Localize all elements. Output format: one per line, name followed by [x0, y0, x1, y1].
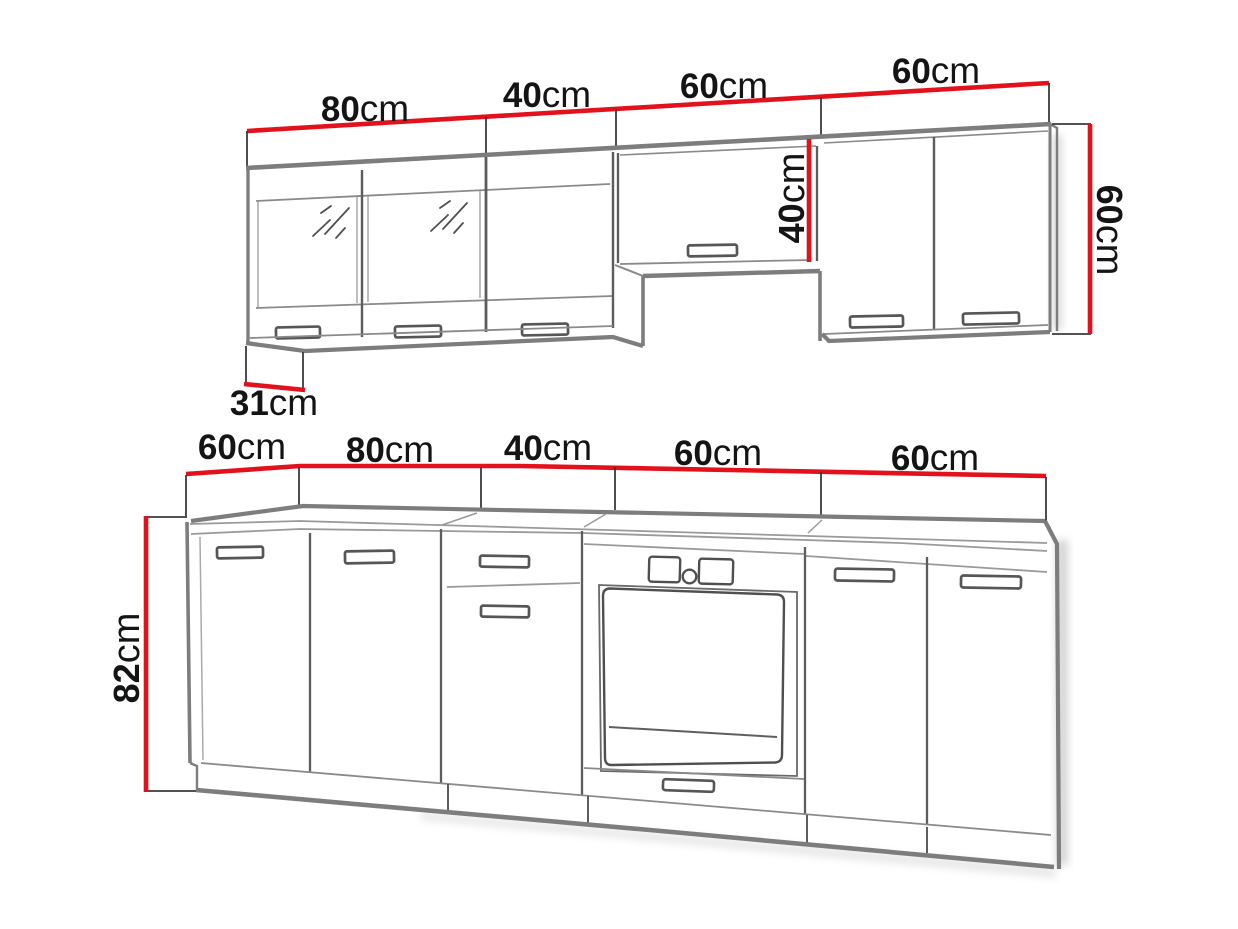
svg-text:31cm: 31cm — [230, 382, 318, 423]
svg-text:40cm: 40cm — [503, 74, 591, 115]
svg-text:60cm: 60cm — [198, 426, 286, 467]
svg-text:80cm: 80cm — [321, 88, 409, 129]
svg-text:60cm: 60cm — [674, 432, 762, 473]
svg-text:40cm: 40cm — [504, 427, 592, 468]
svg-text:40cm: 40cm — [771, 153, 813, 244]
svg-text:82cm: 82cm — [106, 613, 148, 704]
svg-text:60cm: 60cm — [892, 50, 980, 91]
svg-text:60cm: 60cm — [1088, 185, 1130, 276]
svg-text:80cm: 80cm — [346, 429, 434, 470]
svg-text:60cm: 60cm — [680, 65, 768, 106]
svg-text:60cm: 60cm — [891, 437, 979, 478]
